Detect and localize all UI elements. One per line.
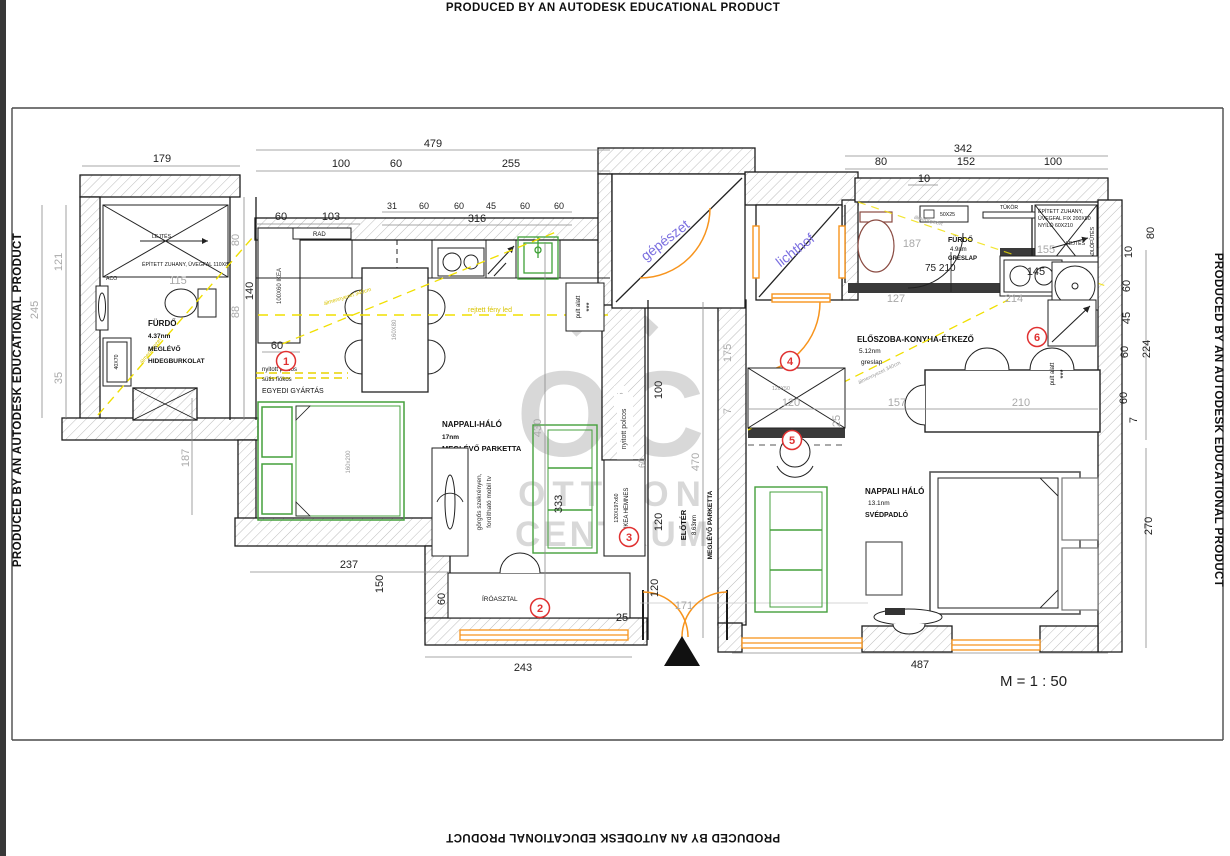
- pantry-cabinet: 100X60 IKEA nyitott polcos sütis fiókos …: [256, 228, 348, 395]
- dim-155: 155: [1037, 244, 1055, 256]
- stars-right-label: ***: [1059, 369, 1068, 378]
- producer-text-left: PRODUCED BY AN AUTODESK EDUCATIONAL PROD…: [12, 233, 24, 567]
- dim-103: 103: [322, 211, 340, 223]
- svg-text:1: 1: [283, 356, 289, 368]
- side-table: [866, 542, 902, 595]
- dim-top-60: 60: [390, 158, 402, 170]
- tray-label: 40X70: [114, 354, 120, 369]
- svg-text:5: 5: [789, 435, 795, 447]
- hemnes-label1: 120X197x60: [614, 493, 620, 522]
- window-left: [460, 630, 628, 640]
- dim-157: 157: [888, 397, 906, 409]
- right-bedroom: NAPPALI HÁLÓ 13.1nm SVÉDPADLÓ: [742, 472, 1098, 650]
- dim-k60b: 60: [419, 201, 429, 211]
- cab-5025-label: 50X25: [940, 212, 955, 218]
- dim-m120: 120: [653, 513, 665, 531]
- dim-31: 31: [387, 201, 397, 211]
- dim-187l: 187: [180, 449, 192, 467]
- door-75-label: 75 210: [925, 263, 956, 274]
- hemnes-label2: IKEA HEMNES: [624, 488, 630, 529]
- svg-text:6: 6: [1034, 332, 1040, 344]
- dim-175: 175: [722, 344, 734, 362]
- island-label: 160X80: [392, 319, 398, 340]
- dim-80: 80: [875, 156, 887, 168]
- dining-area: ELŐSZOBA-KONYHA-ÉTKEZŐ 5.12nm greslap ál…: [748, 300, 1100, 477]
- marker-2: 2: [531, 599, 550, 618]
- dim-k60e: 60: [554, 201, 564, 211]
- entry-double-door: [643, 592, 727, 637]
- dim-m60: 60: [637, 458, 647, 468]
- dim-100r: 100: [1044, 156, 1062, 168]
- mirror-label: TÜKÖR: [1000, 204, 1018, 211]
- shower-left-label: ÉPÍTETT ZUHANY, ÜVEGFAL 110X80: [142, 261, 231, 268]
- dim-214: 214: [1005, 293, 1023, 305]
- shower-right-label2: ÜVEGFAL FIX 200X80: [1038, 215, 1091, 222]
- screen-edge-strip: [0, 0, 6, 856]
- dim-k60: 60: [275, 211, 287, 223]
- dim-k60c: 60: [454, 201, 464, 211]
- dim-243: 243: [514, 662, 532, 674]
- dim-150: 150: [374, 575, 386, 593]
- cab-12050-label: 120X50: [772, 386, 790, 392]
- dim-25: 25: [616, 612, 628, 624]
- radiator-label: RAD: [313, 232, 326, 238]
- island-table: 160X80: [345, 268, 445, 392]
- svg-text:3: 3: [626, 532, 632, 544]
- marker-1: 1: [277, 352, 296, 371]
- svg-text:2: 2: [537, 603, 543, 615]
- dim-470: 470: [690, 453, 702, 471]
- eloszoba-floor: greslap: [861, 359, 883, 366]
- furdo-left-name: FÜRDŐ: [148, 319, 176, 328]
- hob: [438, 248, 484, 276]
- furdo-left-area: 4.37nm: [148, 333, 171, 340]
- sink: [518, 237, 558, 279]
- shelf-label: nyitott polcos: [621, 408, 628, 449]
- pult-alatt-right-label: pult alatt: [1050, 362, 1056, 385]
- dim-479: 479: [424, 138, 442, 150]
- dim-35: 35: [53, 372, 65, 384]
- aco-label: ACO: [106, 276, 117, 282]
- floor-plan-canvas: PRODUCED BY AN AUTODESK EDUCATIONAL PROD…: [0, 0, 1230, 856]
- floor-plan-page: PRODUCED BY AN AUTODESK EDUCATIONAL PROD…: [0, 0, 1230, 856]
- shower-right-label1: ÉPÍTETT ZUHANY,: [1038, 208, 1083, 215]
- furdo-left-floor1: MEGLÉVŐ: [148, 344, 181, 353]
- dim-145: 145: [1027, 266, 1045, 278]
- marker-3: 3: [620, 528, 639, 547]
- bed-left: [258, 402, 404, 520]
- dim-121: 121: [53, 253, 65, 271]
- washbasin-left: [96, 286, 108, 330]
- dim-140: 140: [244, 282, 256, 300]
- dim-b120: 120: [649, 579, 661, 597]
- dim-top-100: 100: [332, 158, 350, 170]
- dim-115: 115: [169, 275, 187, 287]
- shower-right-label3: NYÍLÓ 60X210: [1038, 222, 1073, 229]
- lejtes-left-label: LEJTÉS: [152, 233, 172, 240]
- entrance-arrow: [664, 636, 700, 666]
- ikea-cabinet-label: 100X60 IKEA: [277, 268, 283, 304]
- bed-left-label: 160x200: [346, 450, 352, 474]
- dim-270: 270: [1143, 517, 1155, 535]
- dim-cab60: 60: [271, 340, 283, 352]
- dim-316: 316: [468, 213, 486, 225]
- mirror: TÜKÖR: [983, 204, 1037, 218]
- nappali-left-area: 17nm: [442, 434, 459, 441]
- dim-r80: 80: [1145, 227, 1157, 239]
- bed-right: [930, 472, 1098, 614]
- dim-210: 210: [1012, 397, 1030, 409]
- producer-text-bottom: PRODUCED BY AN AUTODESK EDUCATIONAL PROD…: [446, 831, 780, 843]
- tv-unit: [432, 448, 468, 556]
- scale-label: M = 1 : 50: [1000, 673, 1067, 690]
- dim-255: 255: [502, 158, 520, 170]
- dim-r45: 45: [1121, 312, 1133, 324]
- nappali-right-name: NAPPALI HÁLÓ: [865, 487, 924, 496]
- tv-line2: fordítható mobil tv: [486, 475, 493, 527]
- dim-342: 342: [954, 143, 972, 155]
- dim-10: 10: [918, 173, 930, 185]
- stars-label: ***: [585, 302, 594, 311]
- dim-430: 430: [532, 419, 544, 437]
- dim-b60: 60: [436, 593, 448, 605]
- eloszoba-name: ELŐSZOBA-KONYHA-ÉTKEZŐ: [857, 335, 974, 344]
- lejtes-right-label: LEJTÉS: [1066, 240, 1086, 247]
- eloter-area: 8.63nm: [692, 515, 698, 535]
- nappali-right-floor: SVÉDPADLÓ: [865, 510, 909, 519]
- dim-r60c: 60: [1118, 392, 1130, 404]
- dim-7: 7: [722, 408, 734, 414]
- nappali-right-area: 13.1nm: [868, 500, 890, 507]
- dim-88: 88: [230, 306, 242, 318]
- dim-487: 487: [911, 659, 929, 671]
- cab-line3: EGYEDI GYÁRTÁS: [262, 386, 324, 395]
- dim-127: 127: [887, 293, 905, 305]
- toilet-left: [165, 289, 216, 317]
- dim-237: 237: [340, 559, 358, 571]
- dim-45: 45: [486, 201, 496, 211]
- dim-d120: 120: [782, 397, 800, 409]
- eloter-floor: MEGLÉVŐ PARKETTA: [705, 490, 714, 559]
- counter-end-unit: pult alatt ***: [566, 283, 604, 331]
- dim-l80: 80: [230, 234, 242, 246]
- sofa-right: [755, 487, 827, 612]
- dim-171: 171: [675, 600, 693, 612]
- dim-d25: 25: [831, 415, 843, 427]
- dim-r7: 7: [1128, 417, 1140, 423]
- furdo-right-floor: GRESLAP: [948, 256, 977, 262]
- dim-245: 245: [29, 301, 41, 319]
- nappali-left-name: NAPPALI-HÁLÓ: [442, 420, 502, 429]
- dim-152: 152: [957, 156, 975, 168]
- dim-r60b: 60: [1119, 346, 1131, 358]
- producer-text-right: PRODUCED BY AN AUTODESK EDUCATIONAL PROD…: [1212, 253, 1224, 587]
- dim-179: 179: [153, 153, 171, 165]
- counter-run: [256, 240, 610, 278]
- dim-r60a: 60: [1121, 280, 1133, 292]
- dim-187r: 187: [903, 238, 921, 250]
- tv-line1: görgős szekrényen,: [476, 473, 483, 530]
- desk-label: ÍRÓASZTAL: [482, 594, 518, 603]
- cab-line2: sütis fiókos: [262, 377, 292, 383]
- furdo-right-area: 4.9nm: [950, 247, 967, 253]
- dim-224: 224: [1141, 340, 1153, 358]
- marker-4: 4: [781, 352, 800, 371]
- led-label: rejtett fény led: [468, 307, 512, 314]
- dim-r10: 10: [1123, 246, 1135, 258]
- svg-text:4: 4: [787, 356, 794, 368]
- pult-alatt-label: pult alatt: [576, 295, 582, 318]
- marker-6: 6: [1028, 328, 1047, 347]
- corner-section-icon: [1048, 300, 1096, 346]
- toilet-right: [858, 212, 894, 272]
- furdo-left-floor2: HIDEGBURKOLAT: [148, 358, 205, 365]
- dim-333: 333: [553, 495, 565, 513]
- dim-k60d: 60: [520, 201, 530, 211]
- dim-m100: 100: [653, 381, 665, 399]
- eloszoba-area: 5.12nm: [859, 348, 881, 355]
- marker-5: 5: [783, 431, 802, 450]
- eloter-name: ELŐTÉR: [679, 509, 688, 540]
- producer-text-top: PRODUCED BY AN AUTODESK EDUCATIONAL PROD…: [446, 2, 780, 14]
